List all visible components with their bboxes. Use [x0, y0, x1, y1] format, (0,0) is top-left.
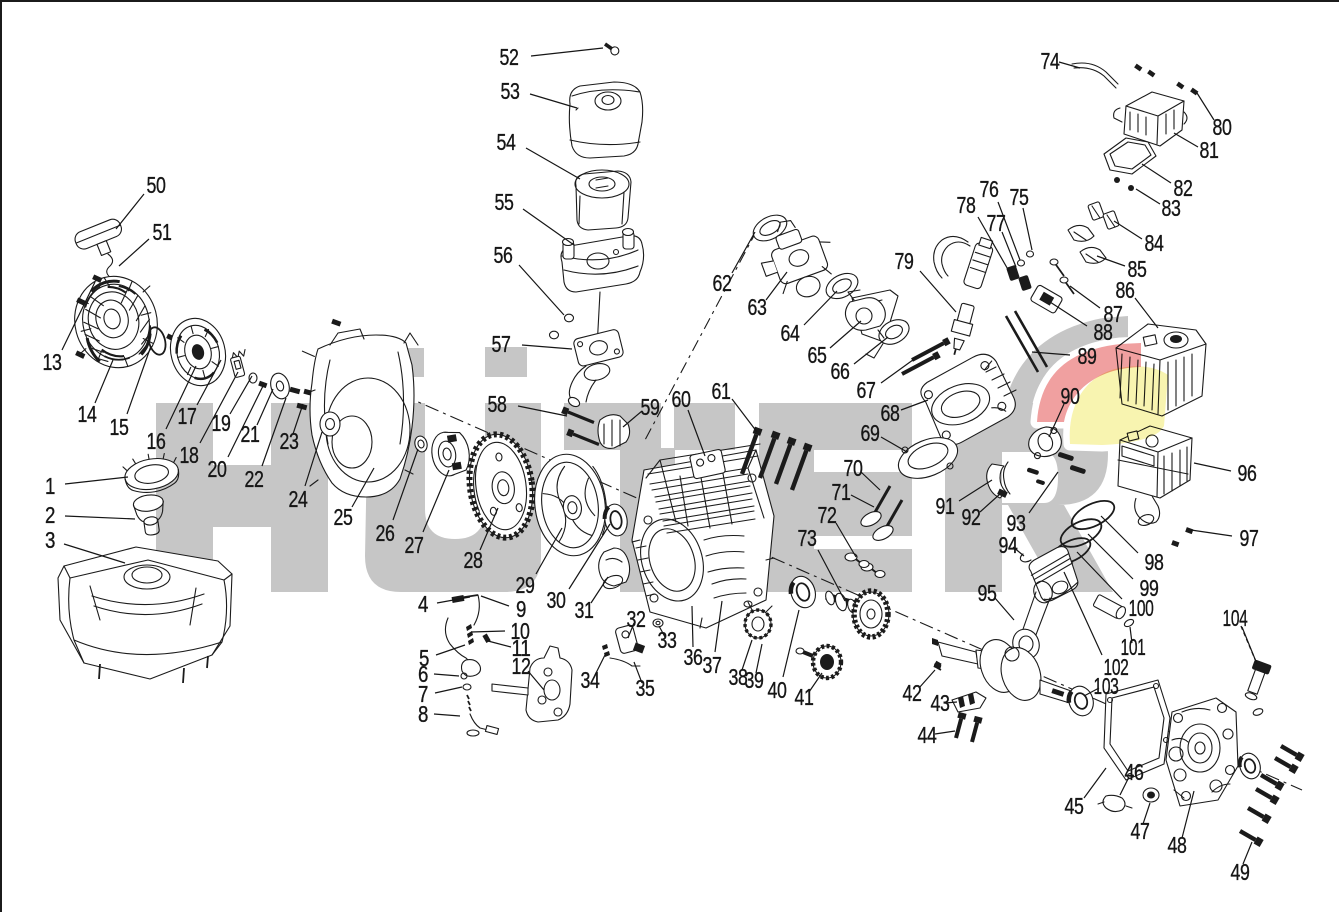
svg-text:94: 94: [999, 532, 1018, 558]
svg-text:33: 33: [658, 627, 677, 653]
svg-text:61: 61: [712, 378, 731, 404]
svg-text:78: 78: [957, 192, 976, 218]
svg-text:70: 70: [844, 455, 863, 481]
svg-text:49: 49: [1231, 859, 1250, 885]
svg-text:60: 60: [672, 386, 691, 412]
svg-text:31: 31: [575, 597, 594, 623]
svg-text:68: 68: [881, 400, 900, 426]
svg-text:51: 51: [153, 219, 172, 245]
svg-text:104: 104: [1223, 605, 1248, 631]
svg-text:23: 23: [280, 428, 299, 454]
svg-text:2: 2: [45, 502, 55, 528]
svg-text:76: 76: [980, 176, 999, 202]
svg-text:4: 4: [418, 591, 428, 617]
svg-text:100: 100: [1129, 595, 1154, 621]
svg-text:96: 96: [1238, 460, 1257, 486]
svg-text:77: 77: [987, 210, 1006, 236]
svg-text:16: 16: [147, 428, 166, 454]
svg-text:95: 95: [978, 580, 997, 606]
svg-text:103: 103: [1094, 673, 1119, 699]
svg-text:90: 90: [1061, 383, 1080, 409]
svg-text:59: 59: [641, 394, 660, 420]
svg-text:42: 42: [903, 680, 922, 706]
svg-text:46: 46: [1125, 759, 1144, 785]
svg-text:29: 29: [516, 572, 535, 598]
svg-text:91: 91: [936, 493, 955, 519]
svg-text:35: 35: [636, 675, 655, 701]
svg-text:24: 24: [289, 486, 308, 512]
svg-text:3: 3: [45, 527, 55, 553]
svg-text:97: 97: [1240, 525, 1259, 551]
svg-text:8: 8: [418, 701, 428, 727]
svg-text:43: 43: [931, 690, 950, 716]
svg-text:28: 28: [464, 547, 483, 573]
svg-text:74: 74: [1041, 48, 1060, 74]
svg-text:45: 45: [1065, 793, 1084, 819]
svg-text:56: 56: [494, 242, 513, 268]
svg-text:86: 86: [1116, 277, 1135, 303]
svg-text:17: 17: [178, 403, 197, 429]
svg-text:1: 1: [45, 473, 55, 499]
svg-text:66: 66: [831, 358, 850, 384]
svg-text:63: 63: [748, 294, 767, 320]
svg-text:40: 40: [768, 677, 787, 703]
svg-text:22: 22: [245, 466, 264, 492]
svg-text:62: 62: [713, 270, 732, 296]
svg-text:64: 64: [781, 320, 800, 346]
svg-text:89: 89: [1078, 343, 1097, 369]
svg-text:98: 98: [1145, 549, 1164, 575]
svg-text:26: 26: [376, 520, 395, 546]
svg-text:41: 41: [795, 684, 814, 710]
svg-text:75: 75: [1010, 184, 1029, 210]
svg-text:19: 19: [212, 410, 231, 436]
svg-text:55: 55: [495, 189, 514, 215]
svg-text:83: 83: [1162, 195, 1181, 221]
svg-text:92: 92: [962, 504, 981, 530]
svg-text:20: 20: [208, 456, 227, 482]
svg-text:30: 30: [547, 587, 566, 613]
svg-text:50: 50: [147, 172, 166, 198]
svg-text:52: 52: [500, 44, 519, 70]
svg-text:72: 72: [818, 502, 837, 528]
svg-text:79: 79: [895, 248, 914, 274]
svg-text:27: 27: [405, 532, 424, 558]
svg-text:15: 15: [110, 414, 129, 440]
svg-text:13: 13: [43, 349, 62, 375]
svg-text:12: 12: [512, 653, 531, 679]
svg-text:54: 54: [497, 129, 516, 155]
svg-text:84: 84: [1145, 230, 1164, 256]
svg-text:21: 21: [241, 421, 260, 447]
svg-text:18: 18: [180, 442, 199, 468]
svg-text:39: 39: [745, 667, 764, 693]
svg-text:88: 88: [1094, 319, 1113, 345]
svg-text:58: 58: [488, 391, 507, 417]
svg-text:67: 67: [857, 377, 876, 403]
svg-text:81: 81: [1200, 137, 1219, 163]
svg-text:25: 25: [334, 504, 353, 530]
svg-text:36: 36: [684, 644, 703, 670]
svg-text:32: 32: [627, 606, 646, 632]
svg-text:73: 73: [798, 525, 817, 551]
svg-text:53: 53: [501, 78, 520, 104]
svg-text:34: 34: [581, 667, 600, 693]
svg-text:14: 14: [78, 401, 97, 427]
svg-text:37: 37: [703, 652, 722, 678]
svg-text:65: 65: [808, 342, 827, 368]
svg-text:69: 69: [861, 420, 880, 446]
svg-text:47: 47: [1131, 818, 1150, 844]
svg-text:57: 57: [492, 331, 511, 357]
svg-text:44: 44: [918, 722, 937, 748]
svg-text:48: 48: [1168, 832, 1187, 858]
